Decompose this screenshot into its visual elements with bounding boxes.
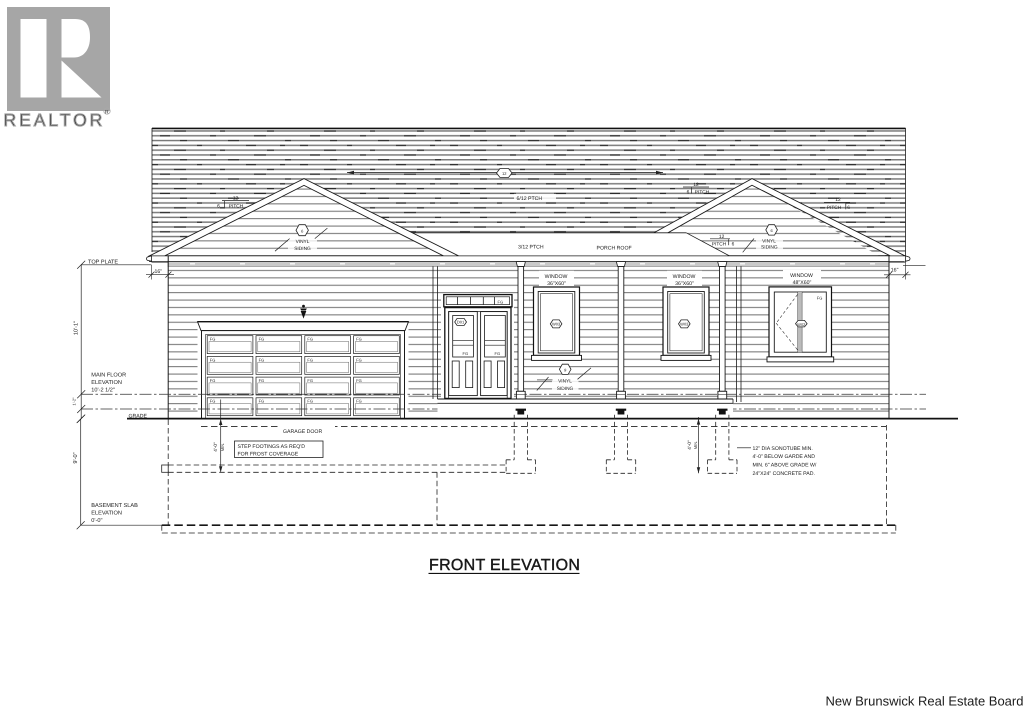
svg-text:STEP FOOTINGS AS REQ'D: STEP FOOTINGS AS REQ'D xyxy=(238,444,306,450)
svg-text:6/12 PTCH: 6/12 PTCH xyxy=(517,196,543,202)
svg-text:FG: FG xyxy=(259,337,265,342)
svg-text:W03: W03 xyxy=(680,322,689,327)
svg-text:9'-0": 9'-0" xyxy=(73,452,79,463)
svg-text:FG: FG xyxy=(817,296,823,301)
svg-text:0'-0": 0'-0" xyxy=(91,518,102,524)
svg-text:VINYL: VINYL xyxy=(296,239,310,245)
svg-text:WINDOW: WINDOW xyxy=(545,274,568,280)
svg-text:10'-1": 10'-1" xyxy=(74,321,80,335)
svg-text:SIDING: SIDING xyxy=(761,245,778,251)
svg-text:6: 6 xyxy=(687,190,690,196)
svg-text:FG: FG xyxy=(259,399,265,404)
svg-text:36"X60": 36"X60" xyxy=(547,281,566,287)
svg-text:FG: FG xyxy=(259,357,265,362)
svg-text:6: 6 xyxy=(217,203,220,209)
svg-text:3/12 PTCH: 3/12 PTCH xyxy=(518,244,544,250)
svg-text:FG: FG xyxy=(210,337,216,342)
svg-text:FG: FG xyxy=(259,378,265,383)
svg-text:ELEVATION: ELEVATION xyxy=(91,380,122,386)
svg-text:16": 16" xyxy=(891,268,899,274)
svg-text:PITCH: PITCH xyxy=(827,205,842,211)
svg-text:6: 6 xyxy=(732,241,735,247)
svg-text:1'-2": 1'-2" xyxy=(72,397,77,406)
svg-text:MIN.: MIN. xyxy=(693,441,698,449)
svg-text:PITCH: PITCH xyxy=(695,190,710,196)
svg-text:FG: FG xyxy=(498,300,504,305)
svg-text:SIDING: SIDING xyxy=(557,386,574,392)
svg-text:48"X60": 48"X60" xyxy=(793,280,812,286)
svg-text:ELEVATION: ELEVATION xyxy=(91,511,122,517)
svg-text:FG: FG xyxy=(210,399,216,404)
svg-text:FRONT ELEVATION: FRONT ELEVATION xyxy=(429,557,580,574)
svg-text:GARAGE DOOR: GARAGE DOOR xyxy=(283,429,322,435)
svg-text:VINYL: VINYL xyxy=(558,379,572,385)
svg-text:W02: W02 xyxy=(797,322,806,327)
svg-text:24"X24" CONCRETE PAD.: 24"X24" CONCRETE PAD. xyxy=(753,471,815,477)
svg-text:R: R xyxy=(105,109,109,115)
svg-text:PITCH: PITCH xyxy=(229,203,244,209)
svg-text:BASEMENT SLAB: BASEMENT SLAB xyxy=(91,503,138,509)
svg-text:PITCH: PITCH xyxy=(712,241,727,247)
svg-text:SIDING: SIDING xyxy=(294,246,311,252)
svg-text:16": 16" xyxy=(155,269,163,275)
svg-text:WINDOW: WINDOW xyxy=(673,274,696,280)
svg-text:FG: FG xyxy=(210,357,216,362)
svg-text:FOR FROST COVERAGE: FOR FROST COVERAGE xyxy=(238,451,299,457)
svg-text:PORCH ROOF: PORCH ROOF xyxy=(597,246,632,252)
svg-text:FG: FG xyxy=(356,337,362,342)
svg-text:WINDOW: WINDOW xyxy=(790,273,813,279)
svg-text:W03: W03 xyxy=(552,322,561,327)
svg-text:FG: FG xyxy=(495,351,501,356)
svg-text:FG: FG xyxy=(307,399,313,404)
svg-text:4'-0": 4'-0" xyxy=(213,442,219,452)
svg-text:FG: FG xyxy=(210,378,216,383)
svg-text:New Brunswick Real Estate Boar: New Brunswick Real Estate Board xyxy=(826,694,1024,709)
svg-text:REALTOR: REALTOR xyxy=(4,110,106,130)
svg-text:6: 6 xyxy=(847,205,850,211)
svg-text:36"X60": 36"X60" xyxy=(675,281,694,287)
svg-text:FG: FG xyxy=(307,378,313,383)
svg-text:VINYL: VINYL xyxy=(762,239,776,245)
svg-text:12: 12 xyxy=(502,171,507,176)
svg-text:FG: FG xyxy=(307,337,313,342)
svg-text:FG: FG xyxy=(463,351,469,356)
svg-text:12" DIA SONOTUBE MIN.: 12" DIA SONOTUBE MIN. xyxy=(753,446,813,452)
svg-text:4'-0" BELOW GARDE AND: 4'-0" BELOW GARDE AND xyxy=(753,454,816,460)
svg-text:FG: FG xyxy=(356,378,362,383)
svg-text:FG: FG xyxy=(356,399,362,404)
svg-text:FG: FG xyxy=(307,357,313,362)
svg-text:MIN. 6" ABOVE GRADE W/: MIN. 6" ABOVE GRADE W/ xyxy=(753,463,817,469)
svg-text:D01: D01 xyxy=(457,320,465,325)
svg-text:MAIN FLOOR: MAIN FLOOR xyxy=(91,373,126,379)
svg-text:10'-2 1/2": 10'-2 1/2" xyxy=(91,387,115,394)
svg-text:MIN.: MIN. xyxy=(220,443,225,451)
svg-text:FG: FG xyxy=(356,357,362,362)
